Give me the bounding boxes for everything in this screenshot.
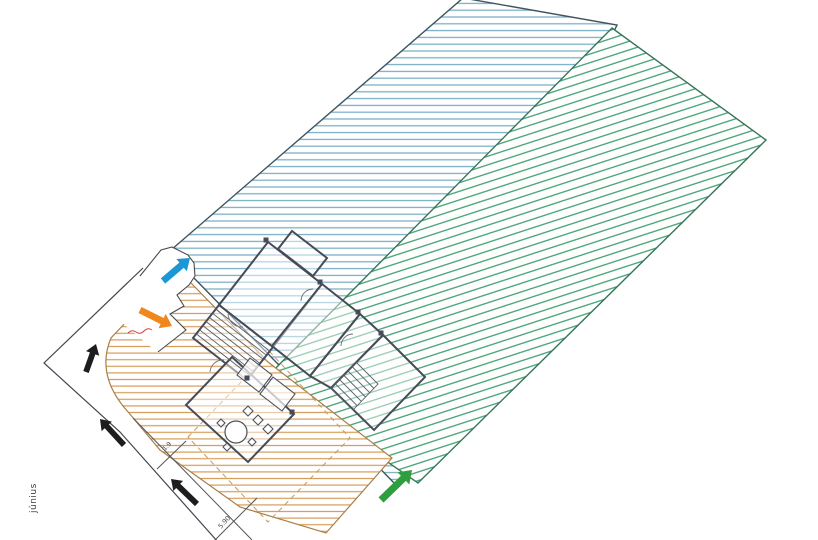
site-plan-drawing: június 1.9 5.90: [0, 0, 818, 540]
wall-stub: [245, 376, 250, 381]
site-plan-page: június 1.9 5.90: [0, 0, 818, 540]
wall-stub: [356, 310, 361, 315]
wall-stub: [264, 238, 269, 243]
wall-stub: [318, 280, 323, 285]
wall-stub: [290, 410, 295, 415]
round-table: [225, 421, 247, 443]
black-arrow-2: [100, 419, 126, 447]
black-arrow-1: [83, 344, 99, 373]
black-arrow-3: [171, 479, 199, 506]
margin-label: június: [29, 483, 39, 514]
wall-stub: [379, 331, 384, 336]
